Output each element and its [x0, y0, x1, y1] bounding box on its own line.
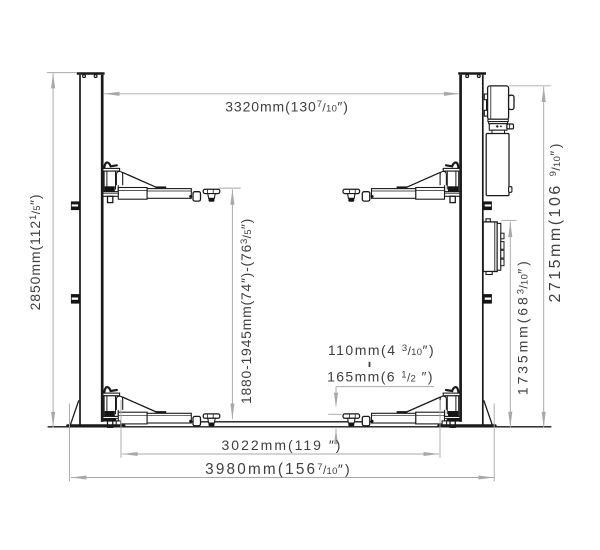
- svg-text:2850mm(1121/5″): 2850mm(1121/5″): [27, 194, 43, 311]
- svg-text:165mm(6 1/2 ″): 165mm(6 1/2 ″): [327, 369, 434, 385]
- svg-text:1880-1945mm(74″)-(763/5″): 1880-1945mm(74″)-(763/5″): [238, 218, 254, 404]
- svg-text:3022mm(119 ″): 3022mm(119 ″): [222, 437, 343, 453]
